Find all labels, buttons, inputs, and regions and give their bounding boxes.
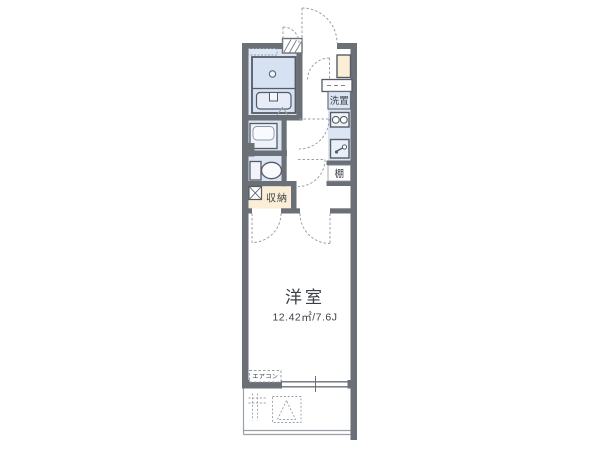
bathtub-step	[270, 93, 278, 102]
washroom-door-swing-arc	[299, 119, 329, 149]
wall-left	[242, 43, 249, 389]
floor-plan-page: 収納 洗置 棚 洋室 12.42㎡/7.6J エアコン	[0, 0, 600, 450]
wall-room-top-b	[281, 208, 300, 213]
toilet-tank	[250, 162, 261, 181]
evacuation-hatch-triangle-icon	[278, 401, 296, 420]
wall-room-top-c	[330, 208, 351, 213]
balcony-window	[282, 376, 348, 392]
closet-door-swing-arc	[252, 214, 281, 243]
faucet-head-icon	[342, 145, 346, 149]
wall-bath-bottom	[242, 115, 303, 121]
wall-toilet-bottom	[242, 181, 297, 186]
room-door-swing-arc	[300, 214, 330, 244]
bathroom	[249, 49, 296, 116]
room-area-label: 12.42㎡/7.6J	[272, 312, 337, 324]
wall-room-top-a	[242, 208, 252, 213]
room-name-label: 洋室	[285, 288, 325, 307]
wall-bath-right	[297, 49, 303, 121]
washbasin-bowl	[253, 127, 274, 141]
burner-right-icon	[340, 116, 347, 123]
entrance-door-swing-arc	[302, 8, 337, 43]
wall-washroom-right	[282, 121, 287, 187]
aircon-label: エアコン	[252, 374, 278, 381]
bath-drain-icon	[269, 71, 275, 77]
faucet-base-icon	[335, 150, 338, 153]
shoe-cabinet	[337, 55, 351, 78]
wall-shelf-bottom	[327, 181, 351, 186]
washing-machine-label: 洗置	[330, 95, 349, 107]
inner-door-swing-arc	[308, 58, 330, 80]
pipe-block	[247, 143, 255, 157]
floor-plan-drawing: 収納 洗置 棚 洋室 12.42㎡/7.6J エアコン	[0, 0, 600, 450]
evacuation-hatch-box	[273, 397, 302, 423]
storage-closet: 収納	[249, 187, 288, 243]
toilet-bowl	[262, 162, 282, 178]
balcony	[244, 389, 351, 435]
main-room: 洋室 12.42㎡/7.6J エアコン	[250, 214, 338, 383]
shelf-label: 棚	[334, 168, 344, 180]
burner-left-icon	[332, 116, 339, 123]
wall-right	[351, 43, 358, 440]
toilet-door-swing-arc	[298, 160, 325, 187]
storage-label: 収納	[266, 192, 288, 205]
wall-shelf-top	[327, 161, 351, 166]
